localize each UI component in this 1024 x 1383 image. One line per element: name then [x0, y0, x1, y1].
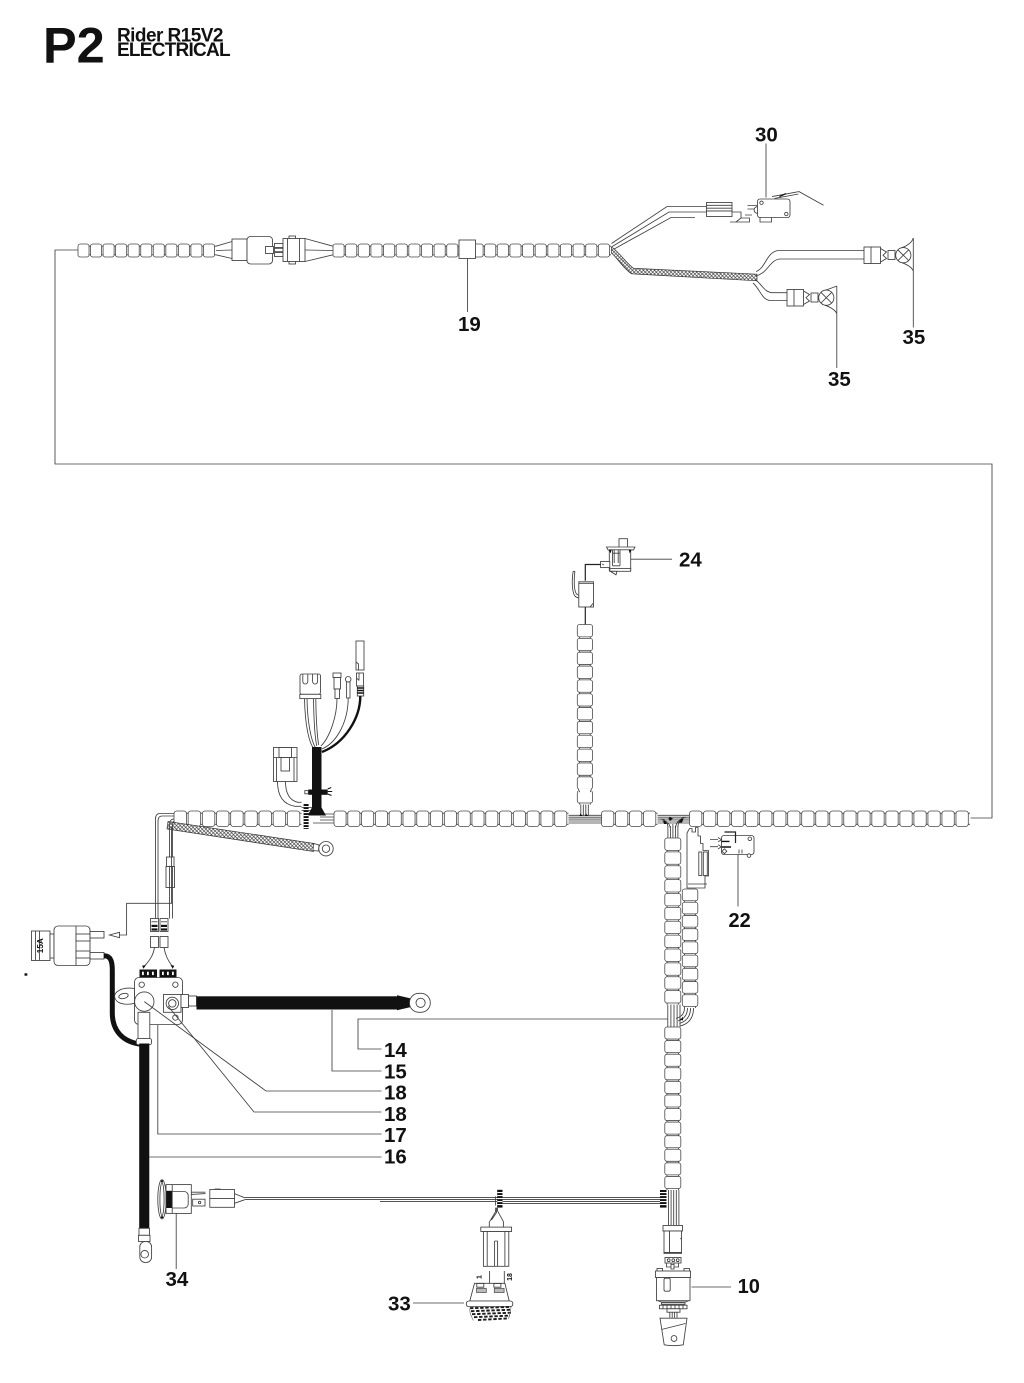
svg-text:10: 10 — [738, 1276, 760, 1298]
svg-text:19: 19 — [458, 313, 481, 336]
svg-text:1: 1 — [477, 1275, 484, 1279]
svg-text:33: 33 — [388, 1293, 411, 1316]
svg-text:P2: P2 — [43, 17, 105, 74]
svg-text:24: 24 — [679, 549, 702, 572]
svg-text:18: 18 — [384, 1103, 407, 1126]
svg-text:ELECTRICAL: ELECTRICAL — [117, 40, 231, 61]
svg-text:16: 16 — [384, 1145, 407, 1168]
svg-text:22: 22 — [729, 910, 751, 932]
svg-text:15A: 15A — [36, 938, 45, 953]
svg-text:14: 14 — [384, 1039, 407, 1062]
svg-text:35: 35 — [828, 368, 851, 391]
svg-text:15: 15 — [384, 1060, 407, 1083]
svg-text:34: 34 — [166, 1268, 189, 1291]
svg-text:17: 17 — [384, 1124, 407, 1147]
svg-text:18: 18 — [507, 1273, 514, 1281]
svg-text:18: 18 — [384, 1082, 407, 1105]
svg-text:30: 30 — [755, 124, 778, 147]
svg-text:35: 35 — [903, 326, 926, 349]
